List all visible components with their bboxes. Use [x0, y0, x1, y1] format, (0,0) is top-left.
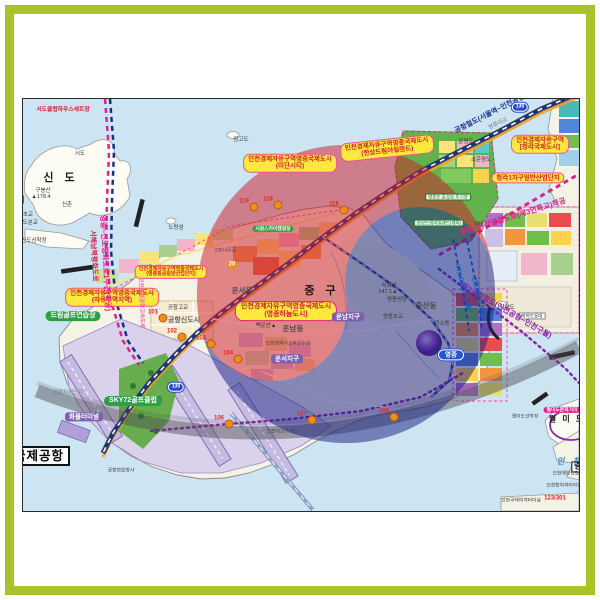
map-labels-layer: 인천경제자유구역영종국제도시(미단시티)인천경제자유구역영종국제도시(한상드림아… — [23, 99, 579, 511]
route-marker-101: 101 — [148, 310, 158, 317]
route-marker-102: 102 — [167, 329, 177, 336]
route-marker-dot — [390, 413, 399, 422]
badge-bus-20: 20 — [227, 262, 238, 269]
label-incheon-sea: 인 천 — [556, 457, 580, 467]
label-cheongna1-industrial: 청라1지구일반산업단지 — [491, 172, 564, 183]
label-airport-support-complex: 공항지원단지 — [53, 390, 83, 396]
label-jung-gu: 중 구 — [304, 285, 339, 297]
label-seokhwasan-height: 147.1▲ — [378, 289, 397, 295]
label-international-airport: 국제공항 — [22, 446, 70, 466]
shield-130-a: 130 — [512, 103, 528, 112]
route-marker-dot — [250, 203, 259, 212]
route-marker-dot — [178, 333, 187, 342]
label-education-institute: 인천광역시교육연수원 — [266, 341, 310, 346]
route-marker-dot — [207, 340, 216, 349]
label-maritime-police: 인천해양경찰청 — [553, 471, 580, 476]
label-yeongjong-sky-city: 인천경제자유구역영종국제도시(영종하늘도시) — [235, 301, 337, 321]
label-yeongjong-cathedral: 영종성당 — [387, 297, 407, 303]
poster-page: { "palette": { "frame_green": "#a9c32b",… — [0, 0, 600, 600]
label-sinchon: 신촌 — [62, 202, 72, 208]
label-cargo-terminal: 화물터미널 — [65, 412, 103, 421]
label-hansang-dream-planned: 한상드림아일랜드(계획) — [414, 219, 464, 226]
route-marker-dot — [225, 420, 234, 429]
route-marker-123-301: 123/301 — [544, 496, 566, 503]
label-unnam-district: 운남지구 — [332, 312, 364, 321]
label-dori: 도 리 — [22, 197, 26, 206]
route-west-sea-peace-road: 서해남북평화도로 — [88, 230, 99, 282]
route-marker-119: 119 — [239, 199, 249, 206]
label-jungsan-dong: 중산동 — [416, 302, 437, 310]
label-cheongna-city: 인천경제자유구역[청라국제도시] — [511, 135, 569, 154]
label-sido: 시도 — [75, 151, 85, 157]
label-dredged-soil-site: 영종도 준설토 투기장 — [425, 193, 471, 200]
label-dream-golf-range: 드림골프연습장 — [45, 311, 100, 321]
label-gubongsan-height: ▲178.4 — [31, 194, 50, 200]
shield-130-b: 130 — [168, 383, 184, 392]
route-marker-dot — [234, 355, 243, 364]
label-yeongjong-bridge: 영종대교 — [488, 117, 509, 131]
label-seaside-camp: 시원스카이캠핑장 — [252, 226, 293, 232]
map-poster: 인천경제자유구역영종국제도시(미단시티)인천경제자유구역영종국제도시(한상드림아… — [22, 98, 580, 512]
route-marker-dot — [159, 314, 168, 323]
label-yeongjong-aviation-industrial: 인천경제자유구역영종국제도시(영종항공일반산업단지) — [135, 265, 207, 279]
label-terminal2: 제2터미널 — [22, 439, 23, 444]
route-marker-108: 108 — [379, 409, 389, 416]
label-sinheung-school: 신흥초교 — [22, 212, 33, 218]
label-janggodo: 장고도 — [233, 137, 248, 143]
label-sido-branch-school: ▲시도분교 — [22, 220, 38, 226]
label-airport-new-town: 공항신도시 — [168, 317, 200, 325]
label-unseo-district: 운서지구 — [271, 354, 303, 363]
label-yeongjong-station: 영종 — [438, 349, 464, 360]
label-wolmido: 월 미 도 — [549, 416, 580, 425]
label-airport-high-school: 공항고교 — [168, 305, 188, 311]
label-midan-city: 인천경제자유구역영종국제도시(미단시티) — [243, 154, 337, 173]
label-unseo-dong: 운서동 — [232, 287, 253, 295]
route-marker-dot — [274, 201, 283, 210]
route-marker-103: 103 — [196, 336, 206, 343]
route-marker-dot — [340, 206, 349, 215]
label-norangseom: 노랑섬 — [168, 225, 183, 231]
label-unnam-dong: 운남동 — [283, 325, 304, 333]
label-unyeomdo: 운염도 — [458, 139, 473, 145]
label-jeonso-dong: 전소동 — [434, 321, 449, 327]
label-gojan-namugol: 고잔나무골 — [214, 248, 236, 253]
label-airport-cargo-office: 공항화물청사 — [108, 468, 134, 473]
route-airport-expressway: 인천국제공항고속도로 — [137, 278, 145, 329]
label-wolmido-dock: 월미도선착장 — [512, 414, 538, 419]
label-sky72-golf-club: SKY72골프클럽 — [104, 396, 162, 406]
label-yeongjong-school: 영종초교 — [383, 314, 403, 320]
label-wolmido-culture-street: 월미도문화거리 — [544, 407, 580, 413]
label-intl-ferry-terminal: 인천국제여객터미널 — [501, 498, 541, 503]
route-marker-116: 116 — [329, 202, 339, 209]
label-hansang-dream-island: 인천경제자유구역영종국제도시(한상드림아일랜드) — [339, 134, 434, 162]
label-incheon-port-terminal: 인천항여객터미널 — [546, 483, 580, 488]
route-marker-107: 107 — [297, 412, 307, 419]
label-sounyeomdo: 소운염도 — [471, 157, 491, 163]
route-marker-118: 118 — [263, 197, 273, 204]
route-marker-104: 104 — [223, 351, 233, 358]
route-marker-dot — [308, 416, 317, 425]
label-sindo-island: 신 도 — [43, 172, 78, 184]
route-third-bridge: 영종~청라연결도로(제3연륙교)착공 — [459, 197, 567, 237]
label-incheon-bridge-memorial: 인천대교기념관 — [267, 429, 298, 434]
label-sindo-dock: 신도선착장 — [22, 238, 47, 244]
label-sido-clubhouse-set: 시도클럽하우스세트장 — [36, 107, 89, 113]
label-baegunsan: 백운산▲ — [256, 323, 277, 329]
route-marker-106: 106 — [214, 416, 224, 423]
label-do-partial: 도 — [22, 364, 24, 376]
